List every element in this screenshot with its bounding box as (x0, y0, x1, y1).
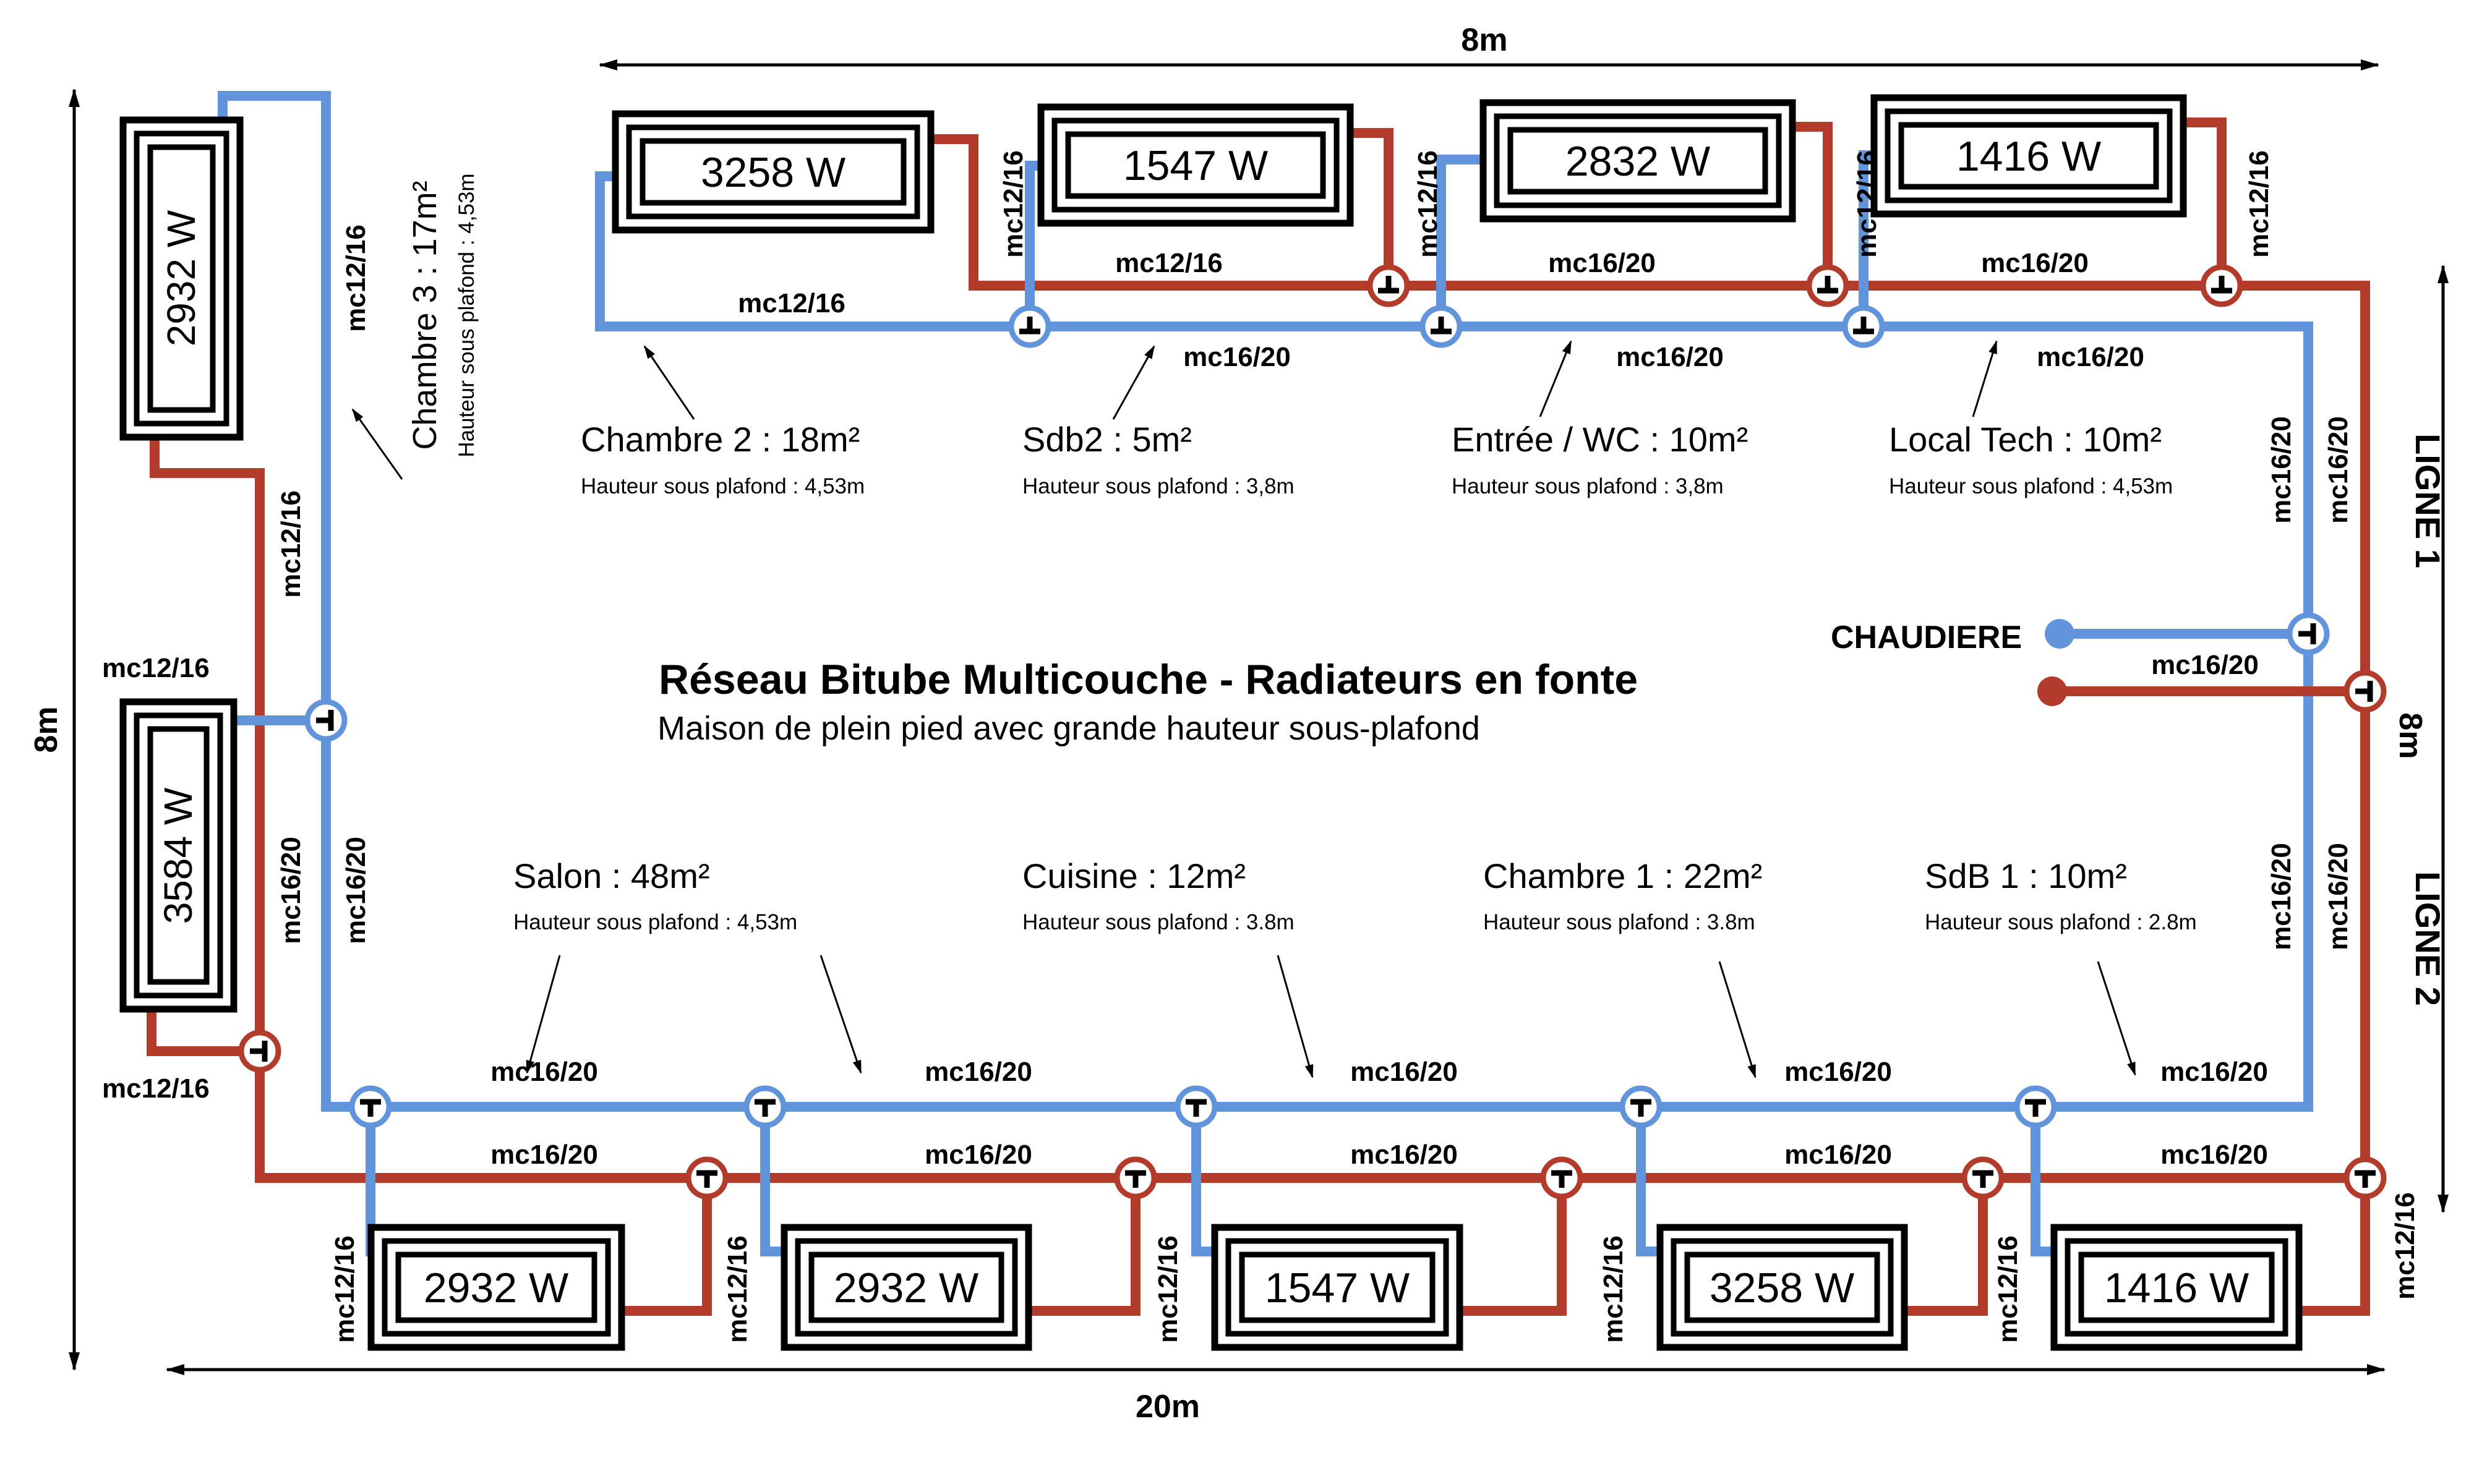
room-height: Hauteur sous plafond : 3,8m (1452, 474, 1724, 498)
annotation-arrow (821, 955, 861, 1073)
radiator-power: 3258 W (701, 149, 845, 196)
pipe-label: mc12/16 (1413, 150, 1443, 258)
pipe-label: mc16/20 (2323, 416, 2353, 524)
pipe-label: mc16/20 (1981, 248, 2089, 278)
pipe-label: mc16/20 (2151, 650, 2259, 680)
annotation-arrow (353, 409, 402, 479)
tee-junction (1370, 267, 1407, 304)
room-name: Salon : 48m² (513, 856, 710, 895)
annotation-arrow (1540, 341, 1571, 417)
tee-junction (1809, 267, 1846, 304)
tee-junction (1178, 1088, 1215, 1125)
room-name: Local Tech : 10m² (1889, 420, 2162, 459)
radiator-chambre3: 2932 W (123, 120, 240, 437)
dimension-right-label: 8m (2392, 712, 2428, 759)
radiator-power: 2932 W (159, 210, 203, 346)
room-name: Sdb2 : 5m² (1022, 420, 1192, 459)
tee-junction (1622, 1088, 1659, 1125)
pipe-label: mc16/20 (2266, 843, 2296, 950)
tee-junction (307, 702, 345, 739)
radiator-salon-vertical: 3584 W (123, 702, 234, 1009)
radiator-entree: 2832 W (1483, 103, 1792, 219)
room-height: Hauteur sous plafond : 4,53m (513, 910, 797, 934)
annotation-arrow (1278, 955, 1312, 1077)
tee-junction (747, 1088, 784, 1125)
radiator-power: 3258 W (1710, 1264, 1854, 1311)
radiator-chambre1: 3258 W (1660, 1227, 1904, 1347)
tee-junction (2017, 1088, 2054, 1125)
pipe-label: mc12/16 (276, 490, 306, 598)
diagram-subtitle: Maison de plein pied avec grande hauteur… (657, 710, 1480, 747)
tee-junction (1964, 1159, 2001, 1196)
dimension-top-label: 8m (1461, 22, 1507, 58)
pipe-label: mc16/20 (1548, 248, 1656, 278)
pipe-label: mc12/16 (1852, 150, 1882, 258)
tee-junction (1117, 1159, 1154, 1196)
pipe-label: mc16/20 (1350, 1140, 1458, 1170)
room-height: Hauteur sous plafond : 4,53m (455, 173, 479, 457)
pipe-label: mc12/16 (330, 1235, 360, 1343)
pipe-label: mc12/16 (1153, 1235, 1183, 1343)
room-height: Hauteur sous plafond : 3.8m (1022, 910, 1295, 934)
pipe-label: mc16/20 (1616, 342, 1724, 372)
annotation-arrow (644, 346, 694, 419)
pipe-label: mc16/20 (1350, 1057, 1458, 1087)
pipe-label: mc12/16 (722, 1235, 753, 1343)
radiator-power: 1547 W (1265, 1264, 1410, 1311)
pipe-label: mc12/16 (738, 288, 845, 318)
pipe-label: mc12/16 (341, 224, 371, 332)
radiator-salon-2: 2932 W (784, 1227, 1029, 1347)
room-height: Hauteur sous plafond : 2.8m (1925, 910, 2197, 934)
tee-junction (2290, 615, 2327, 652)
radiator-power: 2932 W (834, 1264, 978, 1311)
radiator-power: 1416 W (1956, 133, 2101, 180)
room-height: Hauteur sous plafond : 4,53m (581, 474, 865, 498)
room-name: Cuisine : 12m² (1022, 856, 1246, 895)
diagram-title: Réseau Bitube Multicouche - Radiateurs e… (659, 656, 1638, 703)
boiler-label: CHAUDIERE (1831, 620, 2022, 655)
tee-junction (1845, 308, 1882, 345)
room-height: Hauteur sous plafond : 4,53m (1889, 474, 2173, 498)
radiator-power: 2932 W (424, 1264, 568, 1311)
pipe-label: mc12/16 (1115, 248, 1223, 278)
radiator-power: 2832 W (1565, 138, 1710, 185)
pipe-label: mc16/20 (341, 837, 371, 944)
radiator-power: 3584 W (156, 787, 200, 924)
heating-network-diagram: 8m 8m 8m 20m (0, 0, 2474, 1484)
room-name: Chambre 3 : 17m² (406, 181, 443, 450)
pipe-label: mc16/20 (276, 837, 306, 944)
tee-junction (241, 1033, 278, 1070)
room-name: Entrée / WC : 10m² (1452, 420, 1748, 459)
pipe-label: mc12/16 (998, 150, 1029, 258)
pipe-label: mc16/20 (2160, 1140, 2268, 1170)
room-height: Hauteur sous plafond : 3.8m (1483, 910, 1755, 934)
pipe-label: mc16/20 (925, 1140, 1032, 1170)
dimension-bottom-label: 20m (1136, 1389, 1200, 1425)
pipe-label: mc16/20 (1784, 1140, 1892, 1170)
tee-junction (2347, 673, 2384, 710)
annotation-arrow (2098, 962, 2135, 1075)
pipe-label: mc16/20 (2160, 1057, 2268, 1087)
tee-junction (688, 1159, 726, 1196)
pipe-label: mc12/16 (1598, 1235, 1629, 1343)
tee-junction (2203, 267, 2240, 304)
tee-junction (1543, 1159, 1580, 1196)
annotation-arrow (1973, 341, 1997, 417)
line2-label: LIGNE 2 (2408, 871, 2447, 1006)
radiator-power: 1416 W (2104, 1264, 2249, 1311)
pipe-label: mc16/20 (2037, 342, 2144, 372)
radiator-sdb1: 1416 W (2054, 1227, 2299, 1347)
annotation-arrow (1719, 962, 1755, 1077)
radiator-salon-1: 2932 W (371, 1227, 622, 1347)
pipe-label: mc16/20 (490, 1057, 598, 1087)
tee-junction (1423, 308, 1460, 345)
annotation-arrow (1113, 346, 1154, 419)
dimension-left-label: 8m (28, 706, 64, 753)
radiator-localtech: 1416 W (1874, 98, 2183, 214)
pipe-label: mc16/20 (925, 1057, 1032, 1087)
pipe-label: mc12/16 (102, 1073, 210, 1104)
tee-junction (1011, 308, 1048, 345)
pipe-label: mc12/16 (102, 653, 210, 683)
boiler-return-port (2045, 619, 2074, 649)
radiator-chambre2: 3258 W (615, 114, 931, 230)
radiator-sdb2: 1547 W (1041, 107, 1350, 223)
pipe-label: mc12/16 (2390, 1192, 2420, 1300)
room-name: Chambre 1 : 22m² (1483, 856, 1762, 895)
tee-junction (352, 1088, 389, 1125)
line1-label: LIGNE 1 (2408, 433, 2447, 568)
room-name: Chambre 2 : 18m² (581, 420, 860, 459)
pipe-label: mc12/16 (2244, 150, 2274, 258)
boiler-supply-port (2037, 676, 2067, 706)
room-name: SdB 1 : 10m² (1925, 856, 2127, 895)
pipe-label: mc16/20 (2266, 416, 2296, 524)
pipe-label: mc16/20 (490, 1140, 598, 1170)
tee-junction (2347, 1159, 2384, 1196)
room-height: Hauteur sous plafond : 3,8m (1022, 474, 1295, 498)
radiator-cuisine: 1547 W (1215, 1227, 1460, 1347)
pipe-label: mc12/16 (1993, 1235, 2023, 1343)
radiator-power: 1547 W (1123, 142, 1268, 189)
annotation-arrow (527, 955, 560, 1073)
pipe-label: mc16/20 (1784, 1057, 1892, 1087)
pipe-label: mc16/20 (2323, 843, 2353, 950)
pipe-label: mc16/20 (1183, 342, 1291, 372)
